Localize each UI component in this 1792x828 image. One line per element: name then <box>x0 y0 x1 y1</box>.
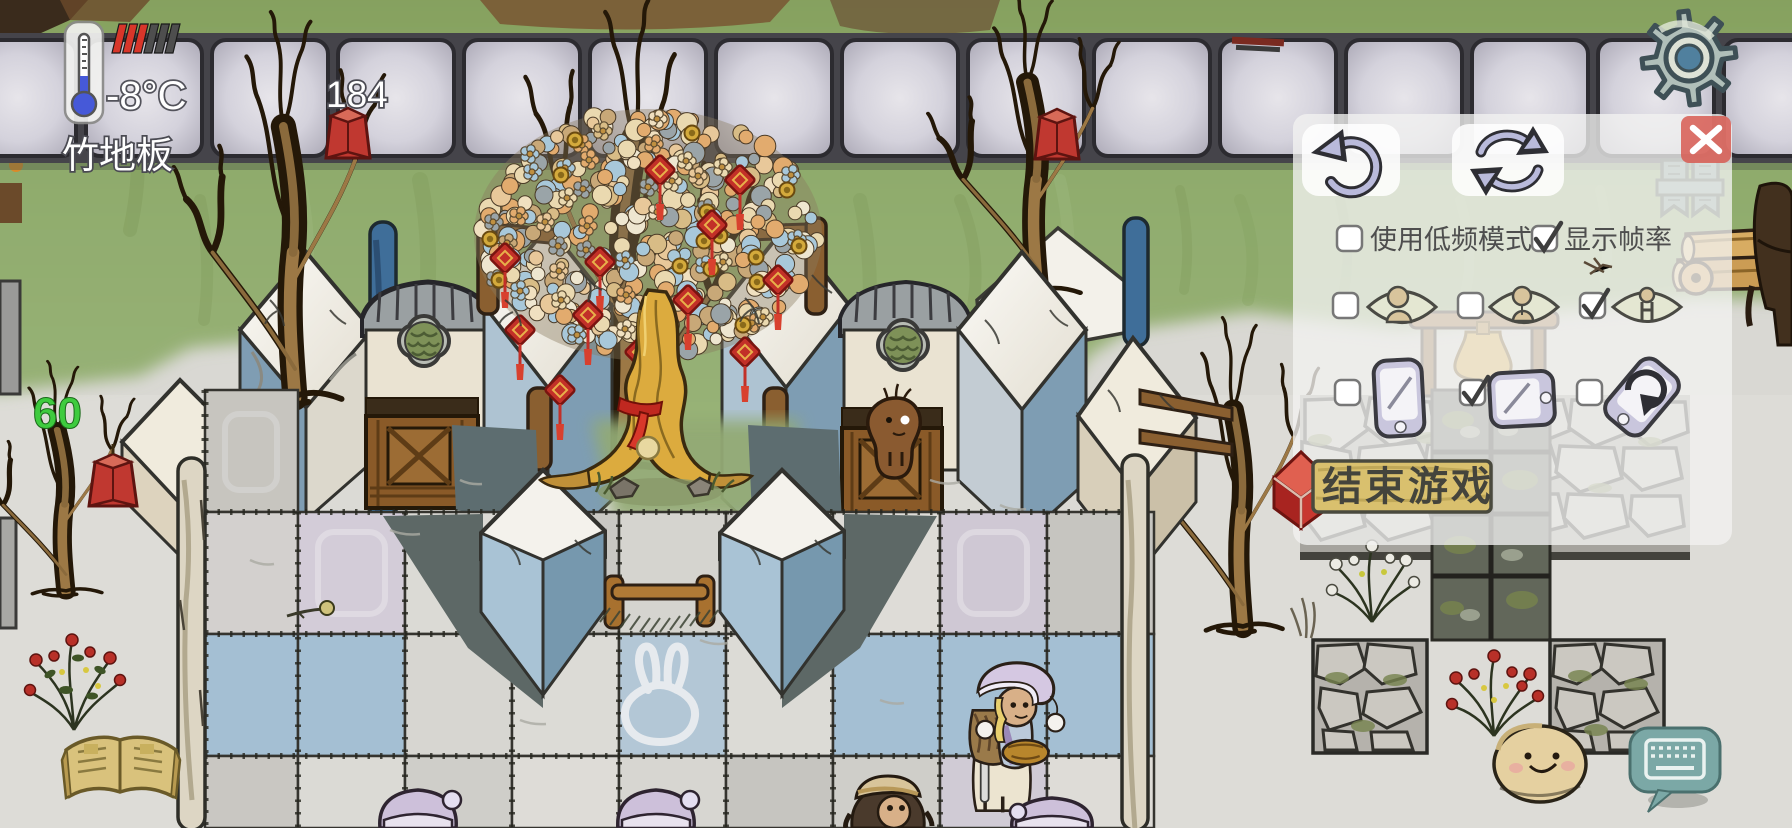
svg-text:显示帧率: 显示帧率 <box>1564 225 1672 255</box>
svg-text:使用低频模式: 使用低频模式 <box>1370 225 1532 255</box>
svg-text:结束游戏: 结束游戏 <box>1322 465 1494 509</box>
svg-text:184: 184 <box>326 74 388 115</box>
svg-text:60: 60 <box>33 389 82 438</box>
svg-text:-8°C: -8°C <box>106 74 186 118</box>
svg-text:竹地板: 竹地板 <box>62 135 173 176</box>
